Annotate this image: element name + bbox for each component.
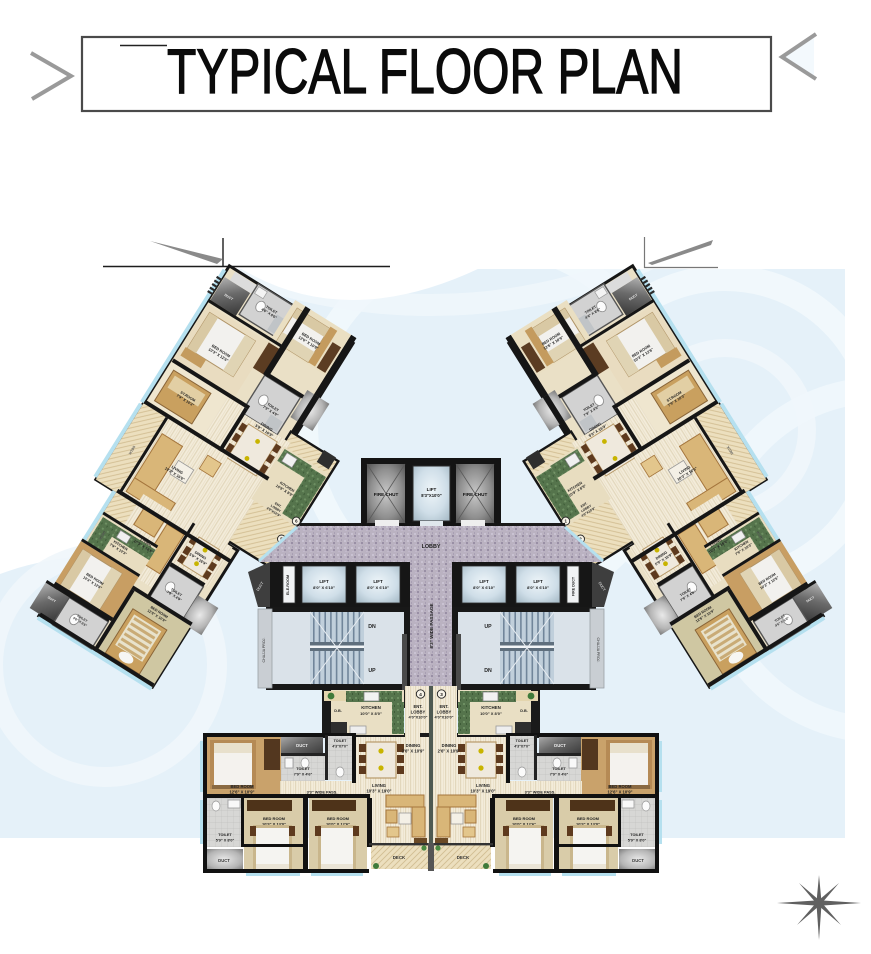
- svg-text:DUCT: DUCT: [218, 858, 230, 863]
- svg-text:10'3" X 19'0": 10'3" X 19'0": [470, 788, 495, 793]
- svg-text:4'0"X10'0": 4'0"X10'0": [435, 715, 454, 720]
- svg-text:TOILET: TOILET: [516, 739, 530, 743]
- svg-text:4'0"X10'0": 4'0"X10'0": [409, 715, 428, 720]
- svg-text:3'3" WIDE PASS.: 3'3" WIDE PASS.: [525, 790, 556, 795]
- svg-text:BED ROOM: BED ROOM: [263, 816, 286, 821]
- svg-text:10'0" X 8'0": 10'0" X 8'0": [360, 711, 382, 716]
- svg-text:DUCT: DUCT: [632, 858, 644, 863]
- svg-text:10'0" X 8'0": 10'0" X 8'0": [480, 711, 502, 716]
- svg-text:LIFT: LIFT: [533, 579, 543, 584]
- svg-text:5'9" X 8'0": 5'9" X 8'0": [628, 838, 647, 842]
- svg-text:LIVING: LIVING: [476, 783, 490, 788]
- svg-text:TOILET: TOILET: [218, 833, 232, 837]
- svg-text:LOBBY: LOBBY: [422, 544, 441, 550]
- svg-text:TOILET: TOILET: [552, 767, 566, 771]
- svg-text:12'6" X 10'9": 12'6" X 10'9": [229, 789, 254, 794]
- svg-text:LIFT: LIFT: [373, 579, 383, 584]
- svg-text:DUCT: DUCT: [296, 743, 308, 748]
- svg-text:7'9" X 4'6": 7'9" X 4'6": [550, 772, 569, 776]
- svg-text:UP: UP: [484, 624, 492, 630]
- svg-text:DN: DN: [484, 668, 492, 674]
- svg-text:4'3"X7'0": 4'3"X7'0": [514, 744, 530, 748]
- svg-text:LIVING: LIVING: [372, 783, 386, 788]
- svg-text:FIRE CHUT: FIRE CHUT: [374, 492, 399, 497]
- svg-text:2'6" X 10'9": 2'6" X 10'9": [402, 748, 425, 753]
- svg-text:7'9" X 4'6": 7'9" X 4'6": [294, 772, 313, 776]
- svg-text:KITCHEN: KITCHEN: [361, 705, 381, 710]
- svg-text:DECK: DECK: [457, 855, 470, 860]
- svg-text:LIFT: LIFT: [479, 579, 489, 584]
- svg-text:LIFT: LIFT: [319, 579, 329, 584]
- svg-text:8'0" X 6'10": 8'0" X 6'10": [527, 585, 549, 590]
- svg-text:BED ROOM: BED ROOM: [327, 816, 350, 821]
- svg-text:KITCHEN: KITCHEN: [481, 705, 501, 710]
- svg-text:8'0" X 6'10": 8'0" X 6'10": [313, 585, 335, 590]
- svg-text:D.B.: D.B.: [520, 709, 528, 713]
- svg-text:2'6" X 10'9": 2'6" X 10'9": [438, 748, 461, 753]
- svg-text:CHAJJA PROJ.: CHAJJA PROJ.: [596, 638, 600, 663]
- svg-text:ELE.ROOM: ELE.ROOM: [286, 575, 290, 595]
- svg-text:TYPICAL FLOOR PLAN: TYPICAL FLOOR PLAN: [167, 37, 683, 107]
- svg-text:12'6" X 10'9": 12'6" X 10'9": [607, 789, 632, 794]
- svg-text:8'0" X 6'10": 8'0" X 6'10": [473, 585, 495, 590]
- svg-text:TOILET: TOILET: [630, 833, 644, 837]
- svg-text:8'0" X 6'10": 8'0" X 6'10": [367, 585, 389, 590]
- svg-text:BED ROOM: BED ROOM: [577, 816, 600, 821]
- svg-text:UP: UP: [368, 668, 376, 674]
- svg-text:4'3"X7'0": 4'3"X7'0": [332, 744, 348, 748]
- svg-text:3'3" WIDE PASS.: 3'3" WIDE PASS.: [307, 790, 338, 795]
- svg-text:TOILET: TOILET: [334, 739, 348, 743]
- svg-text:DINING: DINING: [406, 743, 421, 748]
- svg-text:5'9" X 8'0": 5'9" X 8'0": [216, 838, 235, 842]
- svg-text:DN: DN: [368, 624, 376, 630]
- svg-text:ENT.: ENT.: [439, 704, 448, 709]
- svg-text:CHAJJA PROJ.: CHAJJA PROJ.: [262, 638, 266, 663]
- svg-text:TOILET: TOILET: [296, 767, 310, 771]
- svg-text:8'3"X10'0": 8'3"X10'0": [421, 493, 441, 498]
- svg-text:FIRE CHUT: FIRE CHUT: [463, 492, 488, 497]
- svg-text:DUCT: DUCT: [554, 743, 566, 748]
- svg-text:BED ROOM: BED ROOM: [513, 816, 536, 821]
- svg-text:LIFT: LIFT: [427, 487, 437, 492]
- svg-text:ENT.: ENT.: [413, 704, 422, 709]
- svg-text:3: 3: [440, 692, 443, 697]
- svg-text:FIRE DUCT: FIRE DUCT: [572, 576, 576, 596]
- svg-text:DECK: DECK: [393, 855, 406, 860]
- svg-text:4: 4: [419, 692, 422, 697]
- svg-text:DINING: DINING: [442, 743, 457, 748]
- svg-text:BED ROOM: BED ROOM: [608, 784, 632, 789]
- svg-text:8'3" WIDE PASSAGE: 8'3" WIDE PASSAGE: [429, 603, 434, 648]
- svg-text:10'3" X 19'0": 10'3" X 19'0": [366, 788, 391, 793]
- svg-text:D.B.: D.B.: [334, 709, 342, 713]
- svg-text:BED ROOM: BED ROOM: [230, 784, 254, 789]
